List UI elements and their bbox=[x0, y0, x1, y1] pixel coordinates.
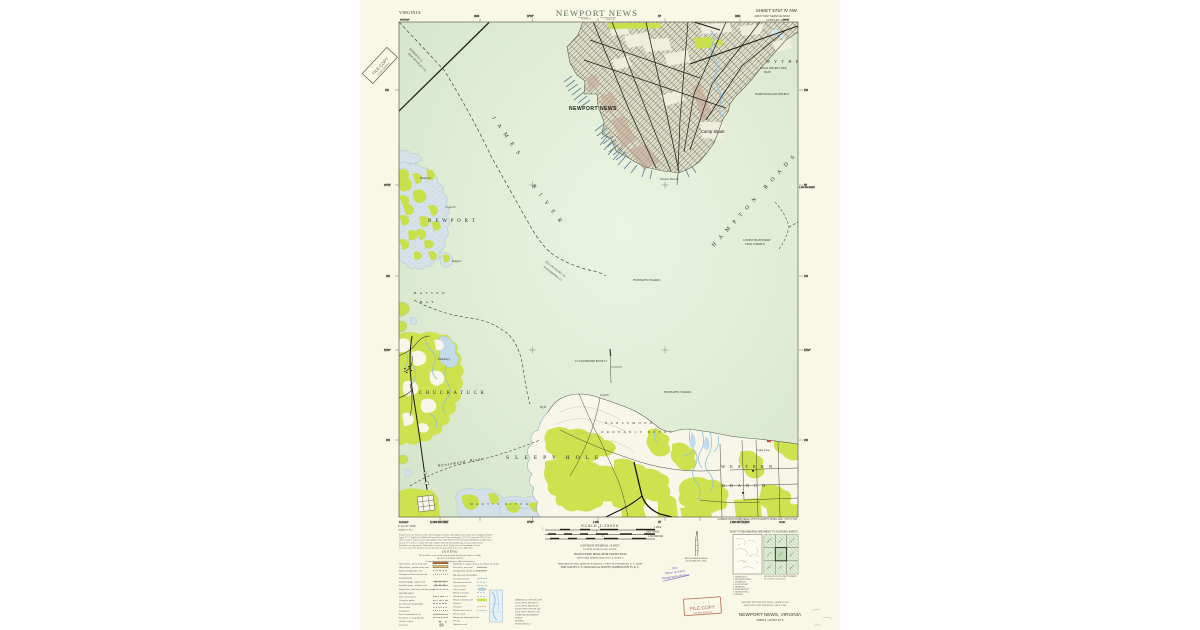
svg-text:76°37'30": 76°37'30" bbox=[400, 19, 410, 22]
svg-text:INDEX TO ADJOINING SHEETS: INDEX TO ADJOINING SHEETS bbox=[764, 531, 798, 534]
svg-text:Fishing Pt: Fishing Pt bbox=[420, 177, 431, 180]
svg-text:HAMPTON ROADS DISTRICT: HAMPTON ROADS DISTRICT bbox=[755, 93, 790, 96]
svg-text:LT NANSEMOND RIVER LT: LT NANSEMOND RIVER LT bbox=[575, 360, 608, 363]
svg-text:Unimproved dirt road and trail: Unimproved dirt road and trail bbox=[399, 574, 428, 576]
svg-text:State or provincial: State or provincial bbox=[399, 597, 416, 599]
svg-text:LIMITED ACCESS ROADS: LIMITED ACCESS ROADS bbox=[515, 599, 543, 602]
svg-text:B R A N C H: B R A N C H bbox=[722, 483, 767, 488]
svg-text:12 000 000 FEET: 12 000 000 FEET bbox=[430, 521, 449, 524]
svg-text:DECLINATION, 1948: DECLINATION, 1948 bbox=[686, 560, 707, 563]
svg-text:Post office, town hall: Post office, town hall bbox=[453, 566, 473, 569]
svg-text:BASE: BASE bbox=[764, 71, 771, 74]
svg-text:Hard surface, heavy duty road: Hard surface, heavy duty road bbox=[399, 563, 428, 566]
svg-text:Standard gauge, multiple track: Standard gauge, multiple track bbox=[399, 584, 428, 587]
svg-text:1 MILE: 1 MILE bbox=[654, 527, 662, 529]
svg-text:STATE HWY. ROUTE 168: STATE HWY. ROUTE 168 bbox=[515, 608, 541, 611]
svg-text:Camp Close: Camp Close bbox=[757, 449, 771, 452]
svg-text:Telephone or telegraph line: Telephone or telegraph line bbox=[399, 617, 424, 620]
svg-text:M A R T I N R I V E R: M A R T I N R I V E R bbox=[470, 502, 529, 506]
svg-text:Intermittent streams: Intermittent streams bbox=[453, 582, 472, 584]
svg-text:FERRY: FERRY bbox=[515, 618, 523, 620]
svg-text:County or parish: County or parish bbox=[399, 600, 415, 602]
svg-text:DATUM IS MEAN SEA LEVEL: DATUM IS MEAN SEA LEVEL bbox=[583, 548, 617, 551]
svg-text:INDEX TO NEIGHBORING AREA: INDEX TO NEIGHBORING AREA bbox=[730, 531, 765, 534]
svg-text:Orchard: Orchard bbox=[453, 603, 461, 605]
svg-text:FOR SALE BY U. S. GEOLOGICAL S: FOR SALE BY U. S. GEOLOGICAL SURVEY, WAS… bbox=[561, 566, 640, 569]
svg-text:35': 35' bbox=[658, 15, 662, 18]
svg-text:Cemetery: Cemetery bbox=[399, 625, 409, 627]
svg-text:NEWPORT NEWS, VIRGINIA: NEWPORT NEWS, VIRGINIA bbox=[739, 612, 802, 617]
svg-text:25 000 FT: 25 000 FT bbox=[581, 19, 592, 21]
svg-text:Buildings in congested areas a: Buildings in congested areas are shown i… bbox=[453, 563, 499, 566]
svg-text:NAVAL DISTRICT HDQ: NAVAL DISTRICT HDQ bbox=[760, 67, 787, 70]
svg-text:Exposed wreck: Exposed wreck bbox=[453, 624, 468, 626]
svg-text:N3652.5—W7637.5/7.5: N3652.5—W7637.5/7.5 bbox=[756, 618, 784, 622]
svg-text:Church, school: Church, school bbox=[399, 621, 413, 623]
svg-text:GRID VA: GRID VA bbox=[606, 18, 615, 21]
svg-text:Dangerous submerged rocks: Dangerous submerged rocks bbox=[453, 616, 479, 619]
svg-text:Single track, other than stand: Single track, other than standard gauge bbox=[399, 588, 435, 591]
svg-text:JAMES RIVER BRIDGE: JAMES RIVER BRIDGE bbox=[515, 614, 539, 617]
svg-text:latest U. S. C. and G. S. char: latest U. S. C. and G. S. charts. This m… bbox=[399, 541, 483, 544]
svg-text:U.S.C.E. 5026: U.S.C.E. 5026 bbox=[398, 524, 416, 528]
svg-text:CORRECTIONS FROM AERIAL PHOTOG: CORRECTIONS FROM AERIAL PHOTOGRAPHS TAKE… bbox=[717, 518, 797, 521]
svg-text:35': 35' bbox=[658, 521, 662, 524]
svg-text:Dumpling I: Dumpling I bbox=[438, 358, 450, 361]
svg-text:MILITARY GRID ADDED BY A.M.S.: MILITARY GRID ADDED BY A.M.S. 1948 bbox=[744, 604, 786, 607]
svg-text:Pig Pt: Pig Pt bbox=[540, 406, 547, 409]
svg-text:37'30": 37'30" bbox=[527, 15, 534, 18]
svg-text:8. DRIVER: 8. DRIVER bbox=[733, 594, 743, 596]
svg-text:mean low water. The shoreline: mean low water. The shoreline shown repr… bbox=[399, 547, 473, 550]
svg-text:APPROXIMATE MEAN: APPROXIMATE MEAN bbox=[685, 557, 708, 560]
svg-text:Depth curves in feet: Depth curves in feet bbox=[453, 609, 472, 612]
svg-text:Cooper Pt: Cooper Pt bbox=[445, 206, 456, 209]
svg-text:C H U C K A T U C K: C H U C K A T U C K bbox=[419, 391, 485, 396]
svg-text:FISH HAVEN N MARKS: FISH HAVEN N MARKS bbox=[633, 279, 661, 282]
svg-text:SHEET 5757 IV NW: SHEET 5757 IV NW bbox=[756, 8, 798, 13]
svg-text:Vineyard: Vineyard bbox=[453, 607, 462, 609]
svg-text:76°35': 76°35' bbox=[779, 521, 786, 524]
svg-text:2000: 2000 bbox=[474, 15, 480, 18]
svg-text:Wrecks: Wrecks bbox=[453, 621, 460, 623]
svg-text:Canal or ditch: Canal or ditch bbox=[453, 586, 467, 588]
svg-text:Woods or brushwood: Woods or brushwood bbox=[453, 600, 473, 602]
svg-text:B A T T E N: B A T T E N bbox=[414, 291, 446, 295]
svg-text:Boundaries are approximate. Da: Boundaries are approximate. Datum plane … bbox=[399, 544, 480, 547]
svg-text:The inclusive scale of this ma: The inclusive scale of this map permits … bbox=[419, 554, 481, 557]
svg-text:Marsh or swamp: Marsh or swamp bbox=[453, 593, 469, 595]
svg-text:2 000 000 YARDS: 2 000 000 YARDS bbox=[730, 521, 750, 524]
svg-text:DRAINAGE FEATURES: DRAINAGE FEATURES bbox=[453, 574, 478, 577]
svg-text:W Y T H E: W Y T H E bbox=[766, 59, 800, 64]
svg-text:52'30": 52'30" bbox=[804, 349, 811, 352]
svg-text:Perennial streams: Perennial streams bbox=[453, 579, 469, 581]
svg-text:Town Pt: Town Pt bbox=[600, 394, 609, 397]
svg-text:SERIES V 834: SERIES V 834 bbox=[398, 529, 413, 532]
svg-text:TUNNEL: TUNNEL bbox=[515, 621, 525, 623]
svg-text:VIRGINIA: VIRGINIA bbox=[399, 10, 422, 15]
svg-text:Newport News Pt: Newport News Pt bbox=[660, 178, 679, 181]
svg-text:Reservation: Reservation bbox=[399, 607, 411, 609]
svg-text:1940; revised in 1944 from aer: 1940; revised in 1944 from aerial photog… bbox=[399, 539, 492, 542]
svg-text:Lake or pond: Lake or pond bbox=[453, 589, 466, 591]
svg-text:STATE RTE 337: STATE RTE 337 bbox=[515, 623, 531, 626]
svg-text:2000: 2000 bbox=[735, 15, 741, 18]
svg-text:LEGEND: LEGEND bbox=[442, 550, 459, 554]
svg-text:Triangulation station or bench: Triangulation station or bench mark bbox=[453, 570, 487, 573]
svg-text:Rocks awash: Rocks awash bbox=[453, 614, 466, 616]
svg-text:Standard gauge, single track: Standard gauge, single track bbox=[399, 581, 426, 584]
svg-text:1 KILOMETER: 1 KILOMETER bbox=[648, 536, 664, 538]
svg-text:Wooded marsh: Wooded marsh bbox=[453, 596, 468, 598]
svg-text:1000-YARD GRID BASED ON U.S. Z: 1000-YARD GRID BASED ON U.S. ZONE A bbox=[576, 556, 623, 559]
svg-text:BOUNDARIES: BOUNDARIES bbox=[399, 592, 415, 595]
svg-text:B A Y: B A Y bbox=[420, 300, 435, 304]
svg-text:O R D N A N C E D E P O T: O R D N A N C E D E P O T bbox=[601, 430, 673, 434]
svg-text:Prepared under the direction o: Prepared under the direction of the Chie… bbox=[399, 534, 493, 537]
svg-text:Camp Stuart: Camp Stuart bbox=[701, 129, 725, 134]
svg-text:Ragged I: Ragged I bbox=[452, 260, 462, 263]
svg-text:1 060 000 FEET: 1 060 000 FEET bbox=[799, 186, 815, 189]
svg-text:36°55': 36°55' bbox=[384, 184, 391, 187]
svg-text:ROAD CLASSIFICATION: ROAD CLASSIFICATION bbox=[437, 557, 463, 560]
svg-text:Improved light duty road: Improved light duty road bbox=[399, 570, 423, 573]
svg-text:PRINTED EDITION NOT FINAL. SER: PRINTED EDITION NOT FINAL. SERIES V 834 bbox=[741, 601, 789, 604]
svg-text:Hard surface, medium duty road: Hard surface, medium duty road bbox=[399, 566, 430, 569]
svg-text:RAILROADS: RAILROADS bbox=[399, 577, 413, 580]
svg-text:N E W P O R T: N E W P O R T bbox=[428, 219, 476, 224]
svg-text:FISH HAVEN N MARKS: FISH HAVEN N MARKS bbox=[664, 391, 692, 394]
svg-text:QUADRANGLE AND SHEET NUMBER: QUADRANGLE AND SHEET NUMBER bbox=[764, 575, 797, 578]
svg-text:U.S.E. HWY. ROUTE 17: U.S.E. HWY. ROUTE 17 bbox=[515, 603, 539, 605]
svg-text:S L E E P Y H O L E: S L E E P Y H O L E bbox=[506, 455, 601, 461]
svg-text:1000 YARDS: 1000 YARDS bbox=[646, 530, 660, 533]
svg-text:LOWEST HIGH WHARF: LOWEST HIGH WHARF bbox=[743, 239, 771, 242]
svg-text:TIDAL WHARF D: TIDAL WHARF D bbox=[745, 243, 765, 246]
svg-text:37'30": 37'30" bbox=[527, 521, 534, 524]
svg-text:NEWPORT NEWS: NEWPORT NEWS bbox=[556, 8, 638, 18]
svg-text:ington D. C. Compiled in 1944: ington D. C. Compiled in 1944 from Newpo… bbox=[399, 536, 490, 539]
svg-text:N A N S E M O N D: N A N S E M O N D bbox=[605, 421, 654, 425]
svg-text:ARMY MAP SERVICE M912: ARMY MAP SERVICE M912 bbox=[754, 14, 790, 18]
svg-text:Land grant: Land grant bbox=[399, 610, 409, 613]
svg-text:U.S.E. HWY. ROUTE 60: U.S.E. HWY. ROUTE 60 bbox=[515, 606, 539, 608]
svg-text:U.S.E. HWY. ROUTE 258: U.S.E. HWY. ROUTE 258 bbox=[515, 612, 541, 614]
svg-text:76°35': 76°35' bbox=[783, 19, 790, 22]
svg-text:NEWPORT NEWS: NEWPORT NEWS bbox=[569, 106, 617, 112]
svg-text:OF 1:25000 SCALE MAPS: OF 1:25000 SCALE MAPS bbox=[764, 578, 785, 581]
svg-text:Incorporated municipality: Incorporated municipality bbox=[399, 604, 424, 606]
svg-text:SCALE 1:25000: SCALE 1:25000 bbox=[581, 524, 619, 528]
svg-text:52'30": 52'30" bbox=[384, 349, 391, 352]
svg-text:W E S T E R N: W E S T E R N bbox=[721, 464, 774, 469]
svg-text:Power transmission line: Power transmission line bbox=[399, 614, 421, 616]
